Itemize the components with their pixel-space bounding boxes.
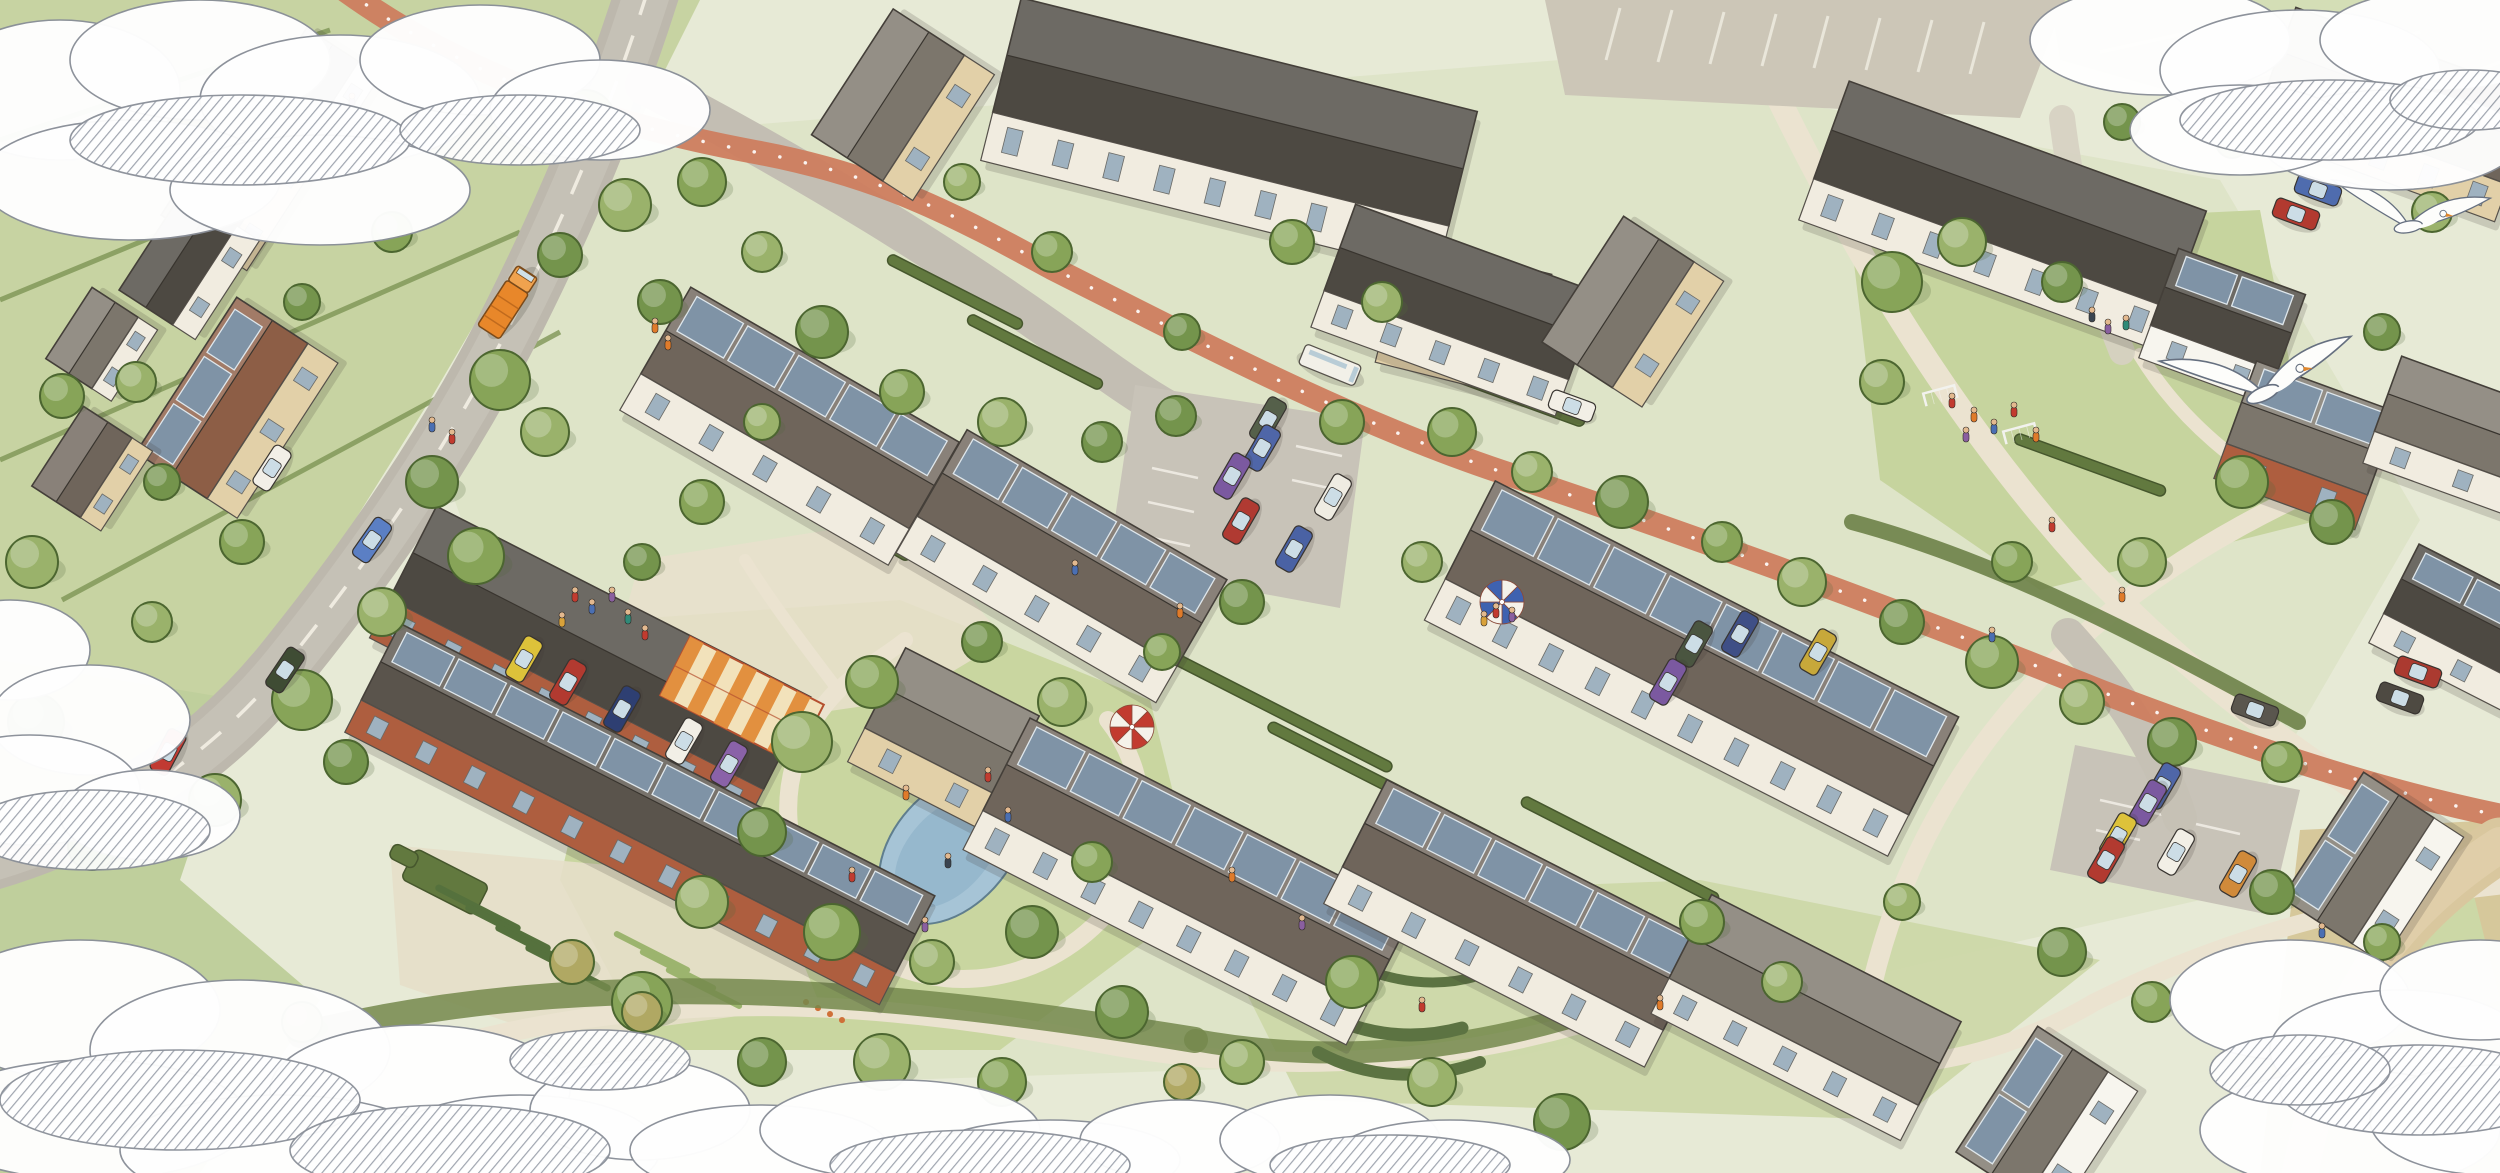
figures bbox=[1971, 412, 1977, 422]
figures bbox=[903, 785, 909, 791]
tree-canopies bbox=[2220, 459, 2249, 488]
figures bbox=[849, 872, 855, 882]
figures bbox=[589, 604, 595, 614]
figures bbox=[2033, 432, 2039, 442]
tree-canopies bbox=[2064, 683, 2088, 707]
tree-canopies bbox=[1167, 316, 1187, 336]
tree-canopies bbox=[859, 1038, 890, 1069]
tree-canopies bbox=[1085, 425, 1107, 447]
cloud-top-left bbox=[400, 95, 640, 165]
figures bbox=[572, 587, 578, 593]
figures bbox=[1229, 867, 1235, 873]
figures bbox=[1481, 611, 1487, 617]
figures bbox=[2119, 587, 2125, 593]
figures bbox=[1991, 424, 1997, 434]
tree-canopies bbox=[2135, 985, 2157, 1007]
figures bbox=[1005, 807, 1011, 813]
figures bbox=[1971, 407, 1977, 413]
figures bbox=[559, 617, 565, 627]
tree-canopies bbox=[625, 995, 647, 1017]
tree-canopies bbox=[224, 523, 248, 547]
tree-canopies bbox=[1274, 223, 1298, 247]
figures bbox=[609, 587, 615, 593]
cloud-bottom-left bbox=[510, 1030, 690, 1090]
cloud-top-left bbox=[70, 95, 410, 185]
tree-canopies bbox=[135, 605, 157, 627]
figures bbox=[2319, 928, 2325, 938]
tree-canopies bbox=[1159, 399, 1181, 421]
figures bbox=[1005, 812, 1011, 822]
tree-canopies bbox=[1010, 909, 1039, 938]
figures bbox=[2105, 324, 2111, 334]
tree-canopies bbox=[2254, 873, 2278, 897]
tree-canopies bbox=[1224, 1043, 1248, 1067]
tree-canopies bbox=[328, 743, 352, 767]
tree-canopies bbox=[2122, 541, 2148, 567]
tree-canopies bbox=[982, 1061, 1008, 1087]
figures bbox=[2319, 923, 2325, 929]
tree-canopies bbox=[1705, 525, 1727, 547]
tree-canopies bbox=[1782, 561, 1808, 587]
tree-canopies bbox=[542, 236, 566, 260]
tree-canopies bbox=[1942, 221, 1968, 247]
tree-canopies bbox=[914, 943, 938, 967]
figures bbox=[2049, 522, 2055, 532]
tree-canopies bbox=[2314, 503, 2338, 527]
masterplan-illustration bbox=[0, 0, 2500, 1173]
figures bbox=[642, 625, 648, 631]
tree-canopies bbox=[742, 1041, 768, 1067]
figures bbox=[985, 772, 991, 782]
figures bbox=[2049, 517, 2055, 523]
figures bbox=[449, 429, 455, 435]
figures bbox=[922, 917, 928, 923]
tree-canopies bbox=[2045, 265, 2067, 287]
tree-canopies bbox=[684, 483, 708, 507]
figures bbox=[2089, 312, 2095, 322]
figures bbox=[1493, 603, 1499, 609]
figures bbox=[1072, 560, 1078, 566]
figures bbox=[1509, 607, 1515, 613]
tree-canopies bbox=[362, 591, 388, 617]
tree-canopies bbox=[287, 286, 307, 306]
figures bbox=[1989, 632, 1995, 642]
tree-canopies bbox=[1100, 989, 1129, 1018]
tree-canopies bbox=[410, 459, 439, 488]
figures bbox=[625, 609, 631, 615]
figures bbox=[2033, 427, 2039, 433]
figures bbox=[2119, 592, 2125, 602]
tree-canopies bbox=[44, 377, 68, 401]
figures bbox=[1177, 603, 1183, 609]
figures bbox=[652, 318, 658, 324]
tree-canopies bbox=[747, 406, 767, 426]
figures bbox=[1509, 612, 1515, 622]
cloud-bottom-right bbox=[2210, 1035, 2390, 1105]
figures bbox=[1177, 608, 1183, 618]
figures bbox=[2105, 319, 2111, 325]
figures bbox=[642, 630, 648, 640]
figures bbox=[572, 592, 578, 602]
figures bbox=[665, 340, 671, 350]
tree-canopies bbox=[525, 411, 551, 437]
tree-canopies bbox=[1365, 285, 1387, 307]
tree-canopies bbox=[475, 354, 508, 387]
figures bbox=[985, 767, 991, 773]
figures bbox=[625, 614, 631, 624]
figures bbox=[589, 599, 595, 605]
tree-canopies bbox=[1075, 845, 1097, 867]
figures bbox=[665, 335, 671, 341]
figures bbox=[1481, 616, 1487, 626]
tree-canopies bbox=[1765, 965, 1787, 987]
figures bbox=[429, 417, 435, 423]
tree-canopies bbox=[10, 539, 39, 568]
tree-canopies bbox=[1330, 959, 1359, 988]
figures bbox=[945, 853, 951, 859]
tree-canopies bbox=[680, 879, 709, 908]
figures bbox=[2089, 307, 2095, 313]
figures bbox=[903, 790, 909, 800]
figures bbox=[1949, 398, 1955, 408]
tree-canopies bbox=[642, 283, 666, 307]
figures bbox=[945, 858, 951, 868]
tree-canopies bbox=[1864, 363, 1888, 387]
tree-canopies bbox=[2107, 106, 2127, 126]
aerial-masterplan-svg bbox=[0, 0, 2500, 1173]
figures bbox=[1072, 565, 1078, 575]
figures bbox=[849, 867, 855, 873]
tree-canopies bbox=[1405, 545, 1427, 567]
tree-canopies bbox=[627, 546, 647, 566]
tree-canopies bbox=[2367, 316, 2387, 336]
tree-canopies bbox=[1684, 903, 1708, 927]
tree-canopies bbox=[1515, 455, 1537, 477]
tree-canopies bbox=[2367, 926, 2387, 946]
figures bbox=[2123, 315, 2129, 321]
tree-canopies bbox=[147, 466, 167, 486]
figures bbox=[2123, 320, 2129, 330]
tree-canopies bbox=[850, 659, 879, 688]
parasol-blue-white bbox=[1500, 600, 1505, 605]
figures bbox=[449, 434, 455, 444]
tree-canopies bbox=[2265, 745, 2287, 767]
figures bbox=[1299, 915, 1305, 921]
figures bbox=[2011, 402, 2017, 408]
figures bbox=[609, 592, 615, 602]
figures bbox=[1963, 427, 1969, 433]
tree-canopies bbox=[1224, 583, 1248, 607]
tree-canopies bbox=[2152, 721, 2178, 747]
tree-canopies bbox=[1042, 681, 1068, 707]
parasol-red-white bbox=[1130, 725, 1135, 730]
tree-canopies bbox=[2042, 931, 2068, 957]
figures bbox=[559, 612, 565, 618]
figures bbox=[652, 323, 658, 333]
tree-canopies bbox=[809, 908, 840, 939]
tree-canopies bbox=[884, 373, 908, 397]
tree-canopies bbox=[947, 166, 967, 186]
tree-canopies bbox=[1600, 479, 1629, 508]
tree-canopies bbox=[1432, 411, 1458, 437]
tree-canopies bbox=[745, 235, 767, 257]
tree-canopies bbox=[982, 401, 1008, 427]
figures bbox=[1657, 1000, 1663, 1010]
tree-canopies bbox=[1887, 886, 1907, 906]
tree-canopies bbox=[1035, 235, 1057, 257]
tree-canopies bbox=[453, 532, 484, 563]
tree-canopies bbox=[1412, 1061, 1438, 1087]
tree-canopies bbox=[554, 943, 578, 967]
tree-canopies bbox=[1147, 636, 1167, 656]
tree-canopies bbox=[1539, 1098, 1570, 1129]
tree-canopies bbox=[1324, 403, 1348, 427]
tree-canopies bbox=[800, 309, 829, 338]
tree-canopies bbox=[1867, 256, 1900, 289]
figures bbox=[1493, 608, 1499, 618]
tree-canopies bbox=[682, 161, 708, 187]
figures bbox=[429, 422, 435, 432]
figures bbox=[1419, 997, 1425, 1003]
figures bbox=[1299, 920, 1305, 930]
tree-canopies bbox=[777, 716, 810, 749]
tree-canopies bbox=[1970, 639, 1999, 668]
figures bbox=[2011, 407, 2017, 417]
figures bbox=[922, 922, 928, 932]
tree-canopies bbox=[1995, 545, 2017, 567]
figures bbox=[1949, 393, 1955, 399]
figures bbox=[1419, 1002, 1425, 1012]
tree-canopies bbox=[965, 625, 987, 647]
tree-canopies bbox=[742, 811, 768, 837]
figures bbox=[1229, 872, 1235, 882]
figures bbox=[1657, 995, 1663, 1001]
figures bbox=[1989, 627, 1995, 633]
tree-canopies bbox=[603, 182, 632, 211]
figures bbox=[1991, 419, 1997, 425]
figures bbox=[1963, 432, 1969, 442]
tree-canopies bbox=[1167, 1066, 1187, 1086]
tree-canopies bbox=[119, 365, 141, 387]
tree-canopies bbox=[1884, 603, 1908, 627]
